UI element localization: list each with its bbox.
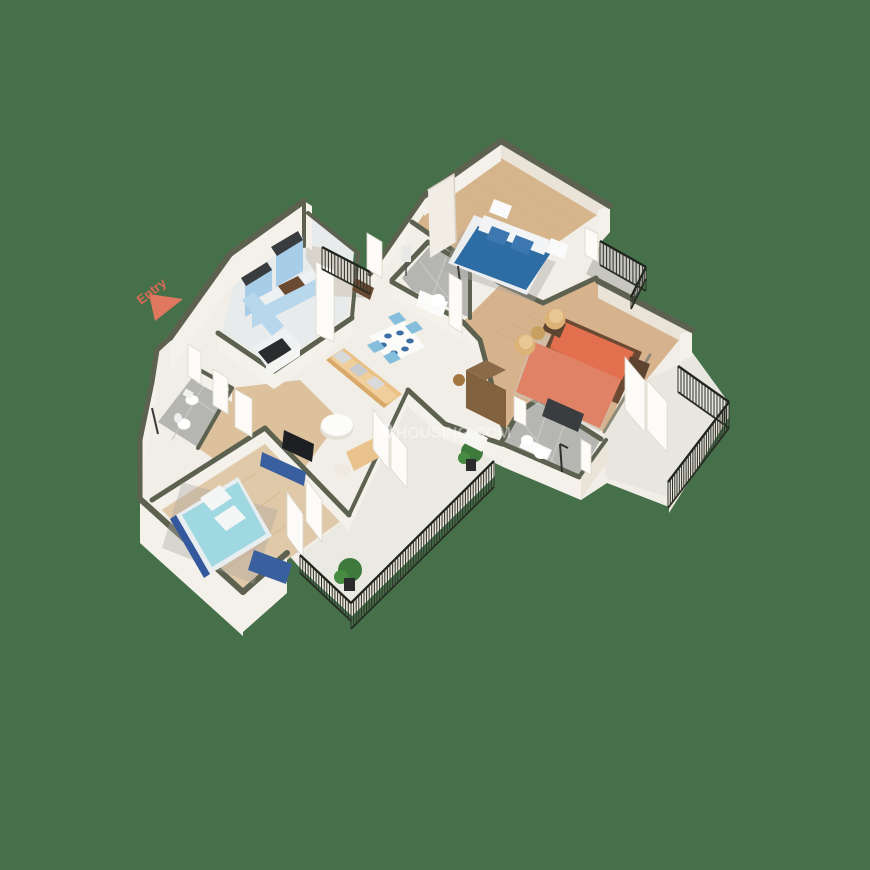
svg-text:HOUSING.COM: HOUSING.COM bbox=[396, 425, 511, 442]
